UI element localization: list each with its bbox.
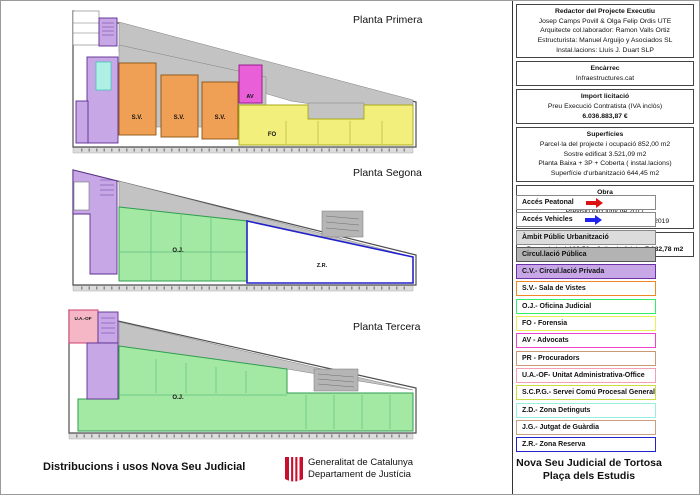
- room-label-sv: S.V.: [215, 115, 226, 121]
- info-box-title: Encàrrec: [518, 64, 692, 74]
- room-label-fo: FO: [268, 132, 277, 138]
- title-block-column: Redactor del Projecte Executiu Josep Cam…: [512, 1, 700, 495]
- info-box-title: Import licitació: [518, 92, 692, 102]
- info-box-title: Redactor del Projecte Executiu: [518, 7, 692, 17]
- info-line: Superfície d'urbanització 644,45 m2: [518, 169, 692, 179]
- legend-item-forensia: FO - Forensia: [516, 316, 656, 331]
- legend-item-zona-detinguts: Z.D.- Zona Detinguts: [516, 403, 656, 418]
- legend-label: Z.R.- Zona Reserva: [522, 441, 585, 448]
- room-label-oj: O.J.: [172, 248, 184, 254]
- legend-item-procuradors: PR - Procuradors: [516, 351, 656, 366]
- legend-label: S.V.- Sala de Vistes: [522, 285, 586, 292]
- legend-item-ambit-public: Àmbit Públic Urbanització: [516, 230, 656, 245]
- legend-label: C.V.- Circul.lació Privada: [522, 268, 604, 275]
- pedestrian-access-arrow-icon: [586, 198, 603, 208]
- legend-label: Accés Peatonal: [522, 199, 574, 206]
- floor-plan-planta-tercera: U.A.-OF O.J.: [56, 307, 516, 467]
- private-circulation-zone: [99, 18, 117, 46]
- legend-label: U.A.-OF- Unitat Administrativa-Office: [522, 372, 645, 379]
- info-line: Estructurista: Manuel Arguijo y Asociado…: [518, 36, 692, 46]
- org-line-2: Departament de Justícia: [308, 469, 413, 481]
- room-label-oj: O.J.: [172, 395, 184, 401]
- info-box-import-licitacio: Import licitació Preu Execució Contratis…: [516, 89, 694, 124]
- legend-label: AV - Advocats: [522, 337, 569, 344]
- legend-label: J.G.- Jutgat de Guàrdia: [522, 424, 599, 431]
- info-line: Planta Baixa + 3P + Coberta ( instal.lac…: [518, 159, 692, 169]
- floor-plan-planta-primera: S.V. S.V. S.V. AV FO: [56, 5, 516, 161]
- private-circulation-zone: [98, 312, 118, 343]
- sheet-title: Distribucions i usos Nova Seu Judicial: [43, 461, 245, 473]
- info-line: Instal.lacions: Lluís J. Duart SLP: [518, 46, 692, 56]
- legend-label: O.J.- Oficina Judicial: [522, 303, 591, 310]
- legend-item-servei-comu: S.C.P.G.- Servei Comú Procesal General: [516, 385, 656, 400]
- legend-label: PR - Procuradors: [522, 355, 580, 362]
- info-line: Infraestructures.cat: [518, 74, 692, 84]
- sidewalk: [73, 147, 413, 153]
- legend-item-sala-de-vistes: S.V.- Sala de Vistes: [516, 281, 656, 296]
- room-label-zr: Z.R.: [317, 263, 328, 269]
- info-box-title: Superfícies: [518, 130, 692, 140]
- legend-label: Àmbit Públic Urbanització: [522, 234, 609, 241]
- legend-item-acces-peatonal: Accés Peatonal: [516, 195, 656, 210]
- vehicle-access-arrow-icon: [585, 215, 602, 225]
- sv-room: [161, 75, 198, 137]
- info-line: Sostre edificat 3.521,09 m2: [518, 150, 692, 160]
- room-label-sv: S.V.: [174, 115, 185, 121]
- private-circulation-zone: [76, 101, 88, 143]
- legend-label: Z.D.- Zona Detinguts: [522, 407, 590, 414]
- private-circulation-zone: [87, 343, 118, 399]
- legend-label: S.C.P.G.- Servei Comú Procesal General: [522, 389, 655, 396]
- generalitat-logo-icon: [284, 456, 304, 483]
- info-line: Josep Camps Povill & Olga Felip Ordis UT…: [518, 17, 692, 27]
- stairs-icon: [322, 211, 363, 237]
- project-title: Nova Seu Judicial de Tortosa Plaça dels …: [513, 457, 665, 484]
- org-line-1: Generalitat de Catalunya: [308, 457, 413, 469]
- legend-item-unitat-administrativa: U.A.-OF- Unitat Administrativa-Office: [516, 368, 656, 383]
- sv-room: [202, 82, 238, 139]
- legend-item-acces-vehicles: Accés Vehicles: [516, 212, 656, 227]
- info-box-redactor: Redactor del Projecte Executiu Josep Cam…: [516, 4, 694, 58]
- info-box-encarrec: Encàrrec Infraestructures.cat: [516, 61, 694, 86]
- legend-item-zona-reserva: Z.R.- Zona Reserva: [516, 437, 656, 452]
- floor-plan-planta-segona: O.J. Z.R.: [56, 164, 516, 314]
- room-label-av: AV: [246, 94, 254, 100]
- sv-room: [119, 63, 156, 135]
- uaof-zone: [69, 310, 98, 343]
- info-line-amount: 6.036.883,87 €: [518, 112, 692, 122]
- legend-item-advocats: AV - Advocats: [516, 333, 656, 348]
- sidewalk: [73, 285, 413, 291]
- organization-block: Generalitat de Catalunya Departament de …: [308, 457, 413, 482]
- legend: Accés Peatonal Accés Vehicles Àmbit Públ…: [516, 195, 656, 454]
- drawing-sheet: Planta Primera S.V. S.V. S.V. AV FO Plan…: [0, 0, 700, 495]
- info-line: Arquitecte col.laborador: Ramon Valls Or…: [518, 26, 692, 36]
- room-label-uaof: U.A.-OF: [74, 316, 91, 321]
- info-line: Preu Execució Contratista (IVA inclòs): [518, 102, 692, 112]
- info-box-superficies: Superfícies Parcel·la del projecte i ocu…: [516, 127, 694, 181]
- stairs-icon: [314, 369, 358, 391]
- zd-room: [96, 62, 111, 90]
- legend-item-jutgat-de-guardia: J.G.- Jutgat de Guàrdia: [516, 420, 656, 435]
- tower-rooms: [74, 182, 89, 210]
- legend-label: Circul.lació Pública: [522, 251, 587, 258]
- legend-label: FO - Forensia: [522, 320, 567, 327]
- restrooms-block: [308, 103, 364, 119]
- tower-rooms: [73, 11, 99, 45]
- room-label-sv: S.V.: [132, 115, 143, 121]
- legend-label: Accés Vehicles: [522, 216, 573, 223]
- legend-item-oficina-judicial: O.J.- Oficina Judicial: [516, 299, 656, 314]
- legend-item-circulacio-privada: C.V.- Circul.lació Privada: [516, 264, 656, 279]
- project-title-line1: Nova Seu Judicial de Tortosa: [513, 457, 665, 470]
- info-line: Parcel·la del projecte i ocupació 852,00…: [518, 140, 692, 150]
- project-title-line2: Plaça dels Estudis: [513, 470, 665, 483]
- legend-item-circulacio-publica: Circul.lació Pública: [516, 247, 656, 262]
